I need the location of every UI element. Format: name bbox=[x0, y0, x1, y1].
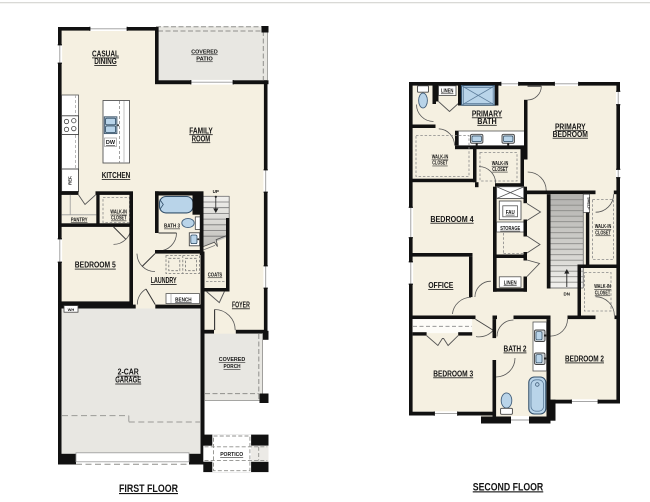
svg-text:LINEN: LINEN bbox=[441, 89, 454, 95]
svg-text:BENCH: BENCH bbox=[175, 297, 192, 303]
svg-text:UP: UP bbox=[213, 189, 219, 194]
svg-text:LAUNDRY: LAUNDRY bbox=[151, 276, 177, 285]
svg-text:BEDROOM 4: BEDROOM 4 bbox=[430, 215, 474, 224]
svg-text:SECOND FLOOR: SECOND FLOOR bbox=[473, 481, 544, 493]
svg-text:COATS: COATS bbox=[208, 273, 223, 279]
svg-text:GARAGE: GARAGE bbox=[115, 376, 141, 385]
svg-text:CLOSET: CLOSET bbox=[492, 167, 508, 173]
svg-text:STORAGE: STORAGE bbox=[500, 226, 520, 232]
svg-text:BEDROOM 2: BEDROOM 2 bbox=[565, 355, 604, 364]
svg-text:WALK-IN: WALK-IN bbox=[595, 224, 612, 230]
svg-text:COVERED: COVERED bbox=[219, 357, 246, 363]
svg-text:OFFICE: OFFICE bbox=[428, 281, 454, 290]
svg-text:FAU: FAU bbox=[506, 210, 515, 216]
svg-text:WH: WH bbox=[68, 307, 75, 312]
svg-text:CLOSET: CLOSET bbox=[595, 291, 611, 297]
svg-text:BATH 2: BATH 2 bbox=[504, 345, 527, 354]
svg-text:KITCHEN: KITCHEN bbox=[102, 171, 131, 180]
svg-text:DINING: DINING bbox=[94, 57, 117, 66]
svg-text:BATH: BATH bbox=[477, 117, 497, 126]
svg-text:BEDROOM 3: BEDROOM 3 bbox=[433, 369, 473, 378]
svg-text:BATH 3: BATH 3 bbox=[164, 224, 180, 230]
svg-text:FOYER: FOYER bbox=[232, 300, 250, 309]
svg-text:PORCH: PORCH bbox=[224, 364, 241, 370]
svg-text:BEDROOM 5: BEDROOM 5 bbox=[75, 261, 116, 270]
svg-text:FIRST FLOOR: FIRST FLOOR bbox=[119, 483, 178, 495]
svg-text:DN: DN bbox=[564, 292, 571, 297]
svg-text:PATIO: PATIO bbox=[196, 57, 213, 63]
svg-text:COVERED: COVERED bbox=[191, 50, 218, 56]
svg-text:PANTRY: PANTRY bbox=[71, 217, 88, 223]
svg-text:CLOSET: CLOSET bbox=[595, 231, 611, 237]
svg-text:DW: DW bbox=[106, 140, 116, 146]
svg-text:REF.: REF. bbox=[68, 176, 73, 185]
svg-text:CLOSET: CLOSET bbox=[111, 216, 127, 222]
svg-text:WALK-IN: WALK-IN bbox=[432, 155, 449, 161]
svg-text:LINEN: LINEN bbox=[504, 280, 517, 286]
svg-text:WALK-IN: WALK-IN bbox=[594, 284, 611, 290]
svg-text:ROOM: ROOM bbox=[192, 134, 211, 143]
svg-text:PORTICO: PORTICO bbox=[220, 452, 244, 458]
svg-text:BEDROOM: BEDROOM bbox=[553, 130, 589, 139]
svg-text:CLOSET: CLOSET bbox=[432, 161, 448, 167]
svg-text:SHELF: SHELF bbox=[587, 197, 591, 210]
